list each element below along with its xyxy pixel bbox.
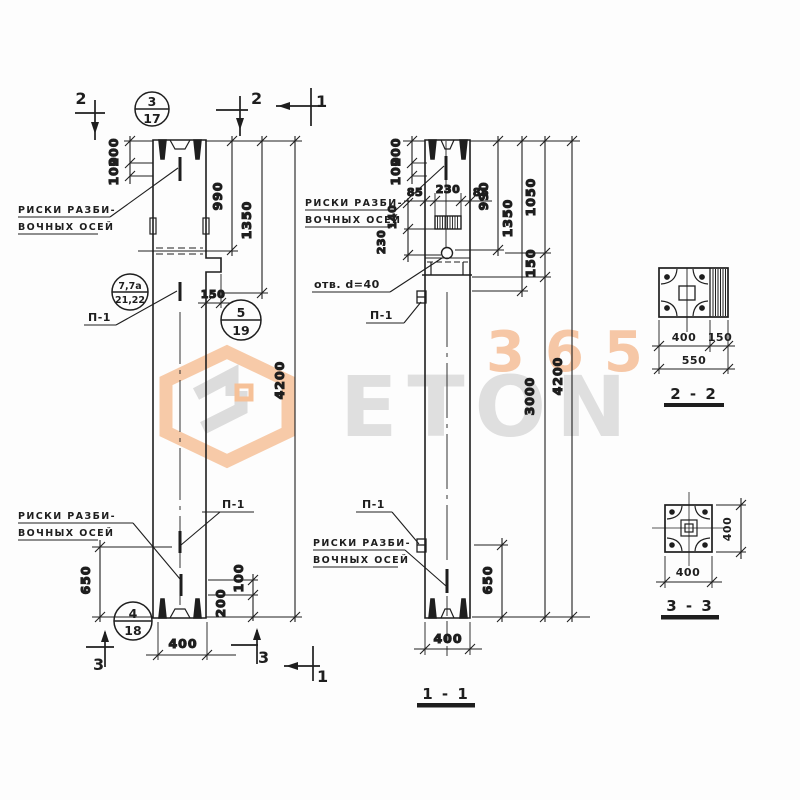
dim-label: 400: [433, 631, 462, 646]
section-2-2: 400 150 550 2 - 2: [652, 268, 735, 407]
callout-4-18: 4 18: [114, 602, 152, 640]
leader-line: [181, 512, 220, 545]
left-column-top-dovetail: [170, 140, 190, 149]
dim-label: 230: [375, 230, 388, 254]
dim-label: 1350: [500, 199, 515, 238]
dim-label: 650: [480, 565, 495, 594]
watermark-logo-chevron-top: [196, 375, 232, 396]
section-3-3: 400 400 3 - 3: [652, 492, 746, 620]
dim-label: 100: [231, 563, 246, 592]
rebar-corners: [661, 269, 708, 316]
note-text: ВОЧНЫХ ОСЕЙ: [305, 214, 401, 226]
note-text: ВОЧНЫХ ОСЕЙ: [18, 527, 114, 539]
note-text: РИСКИ РАЗБИ-: [18, 205, 116, 216]
cut-label: 2: [75, 89, 86, 108]
dim-label: 200: [213, 588, 228, 617]
left-column-bottom-dovetail: [170, 609, 190, 618]
rebar-corners: [667, 506, 710, 551]
section22-hatch: [713, 269, 726, 316]
dim-label: 990: [210, 181, 225, 210]
dim-label: 400: [168, 636, 197, 651]
left-view-notes: РИСКИ РАЗБИ- ВОЧНЫХ ОСЕЙ РИСКИ РАЗБИ- ВО…: [18, 168, 254, 579]
dim-label: 1350: [239, 201, 254, 240]
left-column-top-bar: [159, 140, 166, 159]
note-text: П-1: [362, 498, 385, 511]
note-text: РИСКИ РАЗБИ-: [18, 511, 116, 522]
note-text: РИСКИ РАЗБИ-: [313, 538, 411, 549]
note-p1-mid-upper: П-1: [366, 302, 421, 323]
note-axis-marks-topleft: РИСКИ РАЗБИ- ВОЧНЫХ ОСЕЙ: [18, 168, 178, 234]
dim-label: 550: [682, 354, 706, 367]
note-text: ВОЧНЫХ ОСЕЙ: [18, 221, 114, 233]
mid-column-bottom-bar: [429, 599, 436, 618]
dim-label: 3000: [522, 377, 537, 416]
section-title-2-2: 2 - 2: [664, 385, 724, 407]
left-column-bottom-bar: [194, 599, 201, 618]
left-column-bottom-bar: [159, 599, 166, 618]
cut-marker-3-bottomleft: 3: [86, 630, 114, 674]
dim-label: 230: [436, 183, 460, 196]
dim-label: 150: [523, 248, 538, 277]
callout-bottom: 19: [232, 323, 249, 338]
callout-7-7a: 7,7а 21,22: [112, 274, 148, 310]
view-title-1-1: 1 - 1: [417, 685, 475, 708]
cut-label: 2: [251, 89, 262, 108]
dim-label: 100: [388, 156, 403, 185]
note-text: РИСКИ РАЗБИ-: [305, 198, 403, 209]
cut-marker-2-topleft: 2: [75, 89, 105, 140]
section-title: 3 - 3: [666, 597, 714, 615]
leader-line: [404, 302, 421, 323]
mid-column-top-bar: [460, 140, 467, 159]
callout-5-19: 5 19: [221, 300, 261, 340]
dim-label: 400: [721, 517, 734, 541]
cut-marker-3-bottommid: 3: [231, 628, 269, 667]
callout-bottom: 17: [143, 111, 160, 126]
cut-marker-1-top: 1: [276, 88, 327, 126]
watermark-number: 365: [486, 320, 663, 385]
leader-line: [133, 523, 180, 579]
section22-dimensions: 400 150 550: [652, 320, 735, 374]
note-text: отв. d=40: [314, 278, 380, 291]
cut-label: 1: [316, 92, 327, 111]
dim-label: 4200: [272, 361, 287, 400]
cut-marker-1-bottom: 1: [284, 646, 328, 686]
opening-hatched: [435, 216, 461, 229]
mid-column-bottom-dovetail: [441, 609, 454, 618]
dim-label: 650: [78, 565, 93, 594]
dim-label: 150: [708, 331, 732, 344]
section-title: 2 - 2: [670, 385, 718, 403]
dim-label: 4200: [550, 357, 565, 396]
dim-label: 400: [672, 331, 696, 344]
left-column-top-bar: [194, 140, 201, 159]
dim-label: 1050: [523, 178, 538, 217]
callout-top: 4: [129, 606, 138, 621]
note-text: ВОЧНЫХ ОСЕЙ: [313, 554, 409, 566]
callout-3-17: 3 17: [135, 92, 169, 126]
view-title: 1 - 1: [422, 685, 470, 703]
callout-top: 5: [237, 305, 246, 320]
dim-label: 150: [201, 288, 225, 301]
dim-label: 100: [106, 156, 121, 185]
note-text: П-1: [222, 498, 245, 511]
note-p1-bottomleft: П-1: [181, 498, 254, 545]
cut-label: 1: [317, 667, 328, 686]
drawing-sheet: ETON 365: [0, 0, 800, 800]
cut-label: 3: [258, 648, 269, 667]
callout-top: 7,7а: [118, 281, 141, 292]
callout-bottom: 21,22: [115, 295, 145, 306]
callout-top: 3: [148, 94, 157, 109]
dim-label: 400: [676, 566, 700, 579]
mid-column-top-dovetail: [441, 140, 454, 149]
section-title-3-3: 3 - 3: [661, 597, 719, 620]
mid-column-bottom-bar: [460, 599, 467, 618]
cut-label: 3: [93, 655, 104, 674]
watermark: ETON 365: [166, 320, 663, 461]
note-text: П-1: [88, 311, 111, 324]
watermark-logo-hexagon: [166, 352, 288, 461]
cut-marker-2-topmid: 2: [216, 89, 262, 136]
note-axis-marks-bottomleft: РИСКИ РАЗБИ- ВОЧНЫХ ОСЕЙ: [18, 511, 180, 579]
hole-d40: [442, 248, 453, 259]
mid-column-top-bar: [429, 140, 436, 159]
note-text: П-1: [370, 309, 393, 322]
dim-label: 990: [476, 181, 491, 210]
callout-bottom: 18: [124, 623, 141, 638]
